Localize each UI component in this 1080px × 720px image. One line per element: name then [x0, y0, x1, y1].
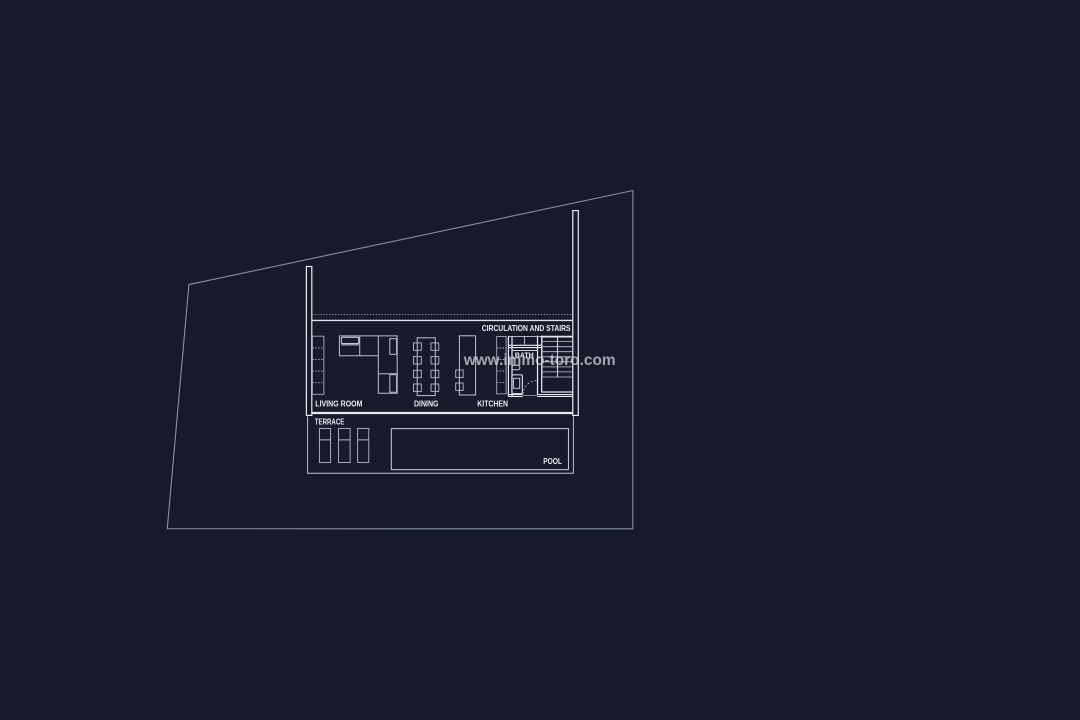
svg-text:LIVING ROOM: LIVING ROOM	[315, 398, 362, 408]
svg-text:KITCHEN: KITCHEN	[477, 398, 508, 408]
svg-text:TERRACE: TERRACE	[315, 417, 345, 426]
svg-text:www.immo-toro.com: www.immo-toro.com	[463, 352, 616, 369]
svg-text:POOL: POOL	[543, 456, 562, 466]
svg-text:CIRCULATION AND STAIRS: CIRCULATION AND STAIRS	[482, 323, 571, 333]
svg-text:DINING: DINING	[414, 398, 439, 408]
